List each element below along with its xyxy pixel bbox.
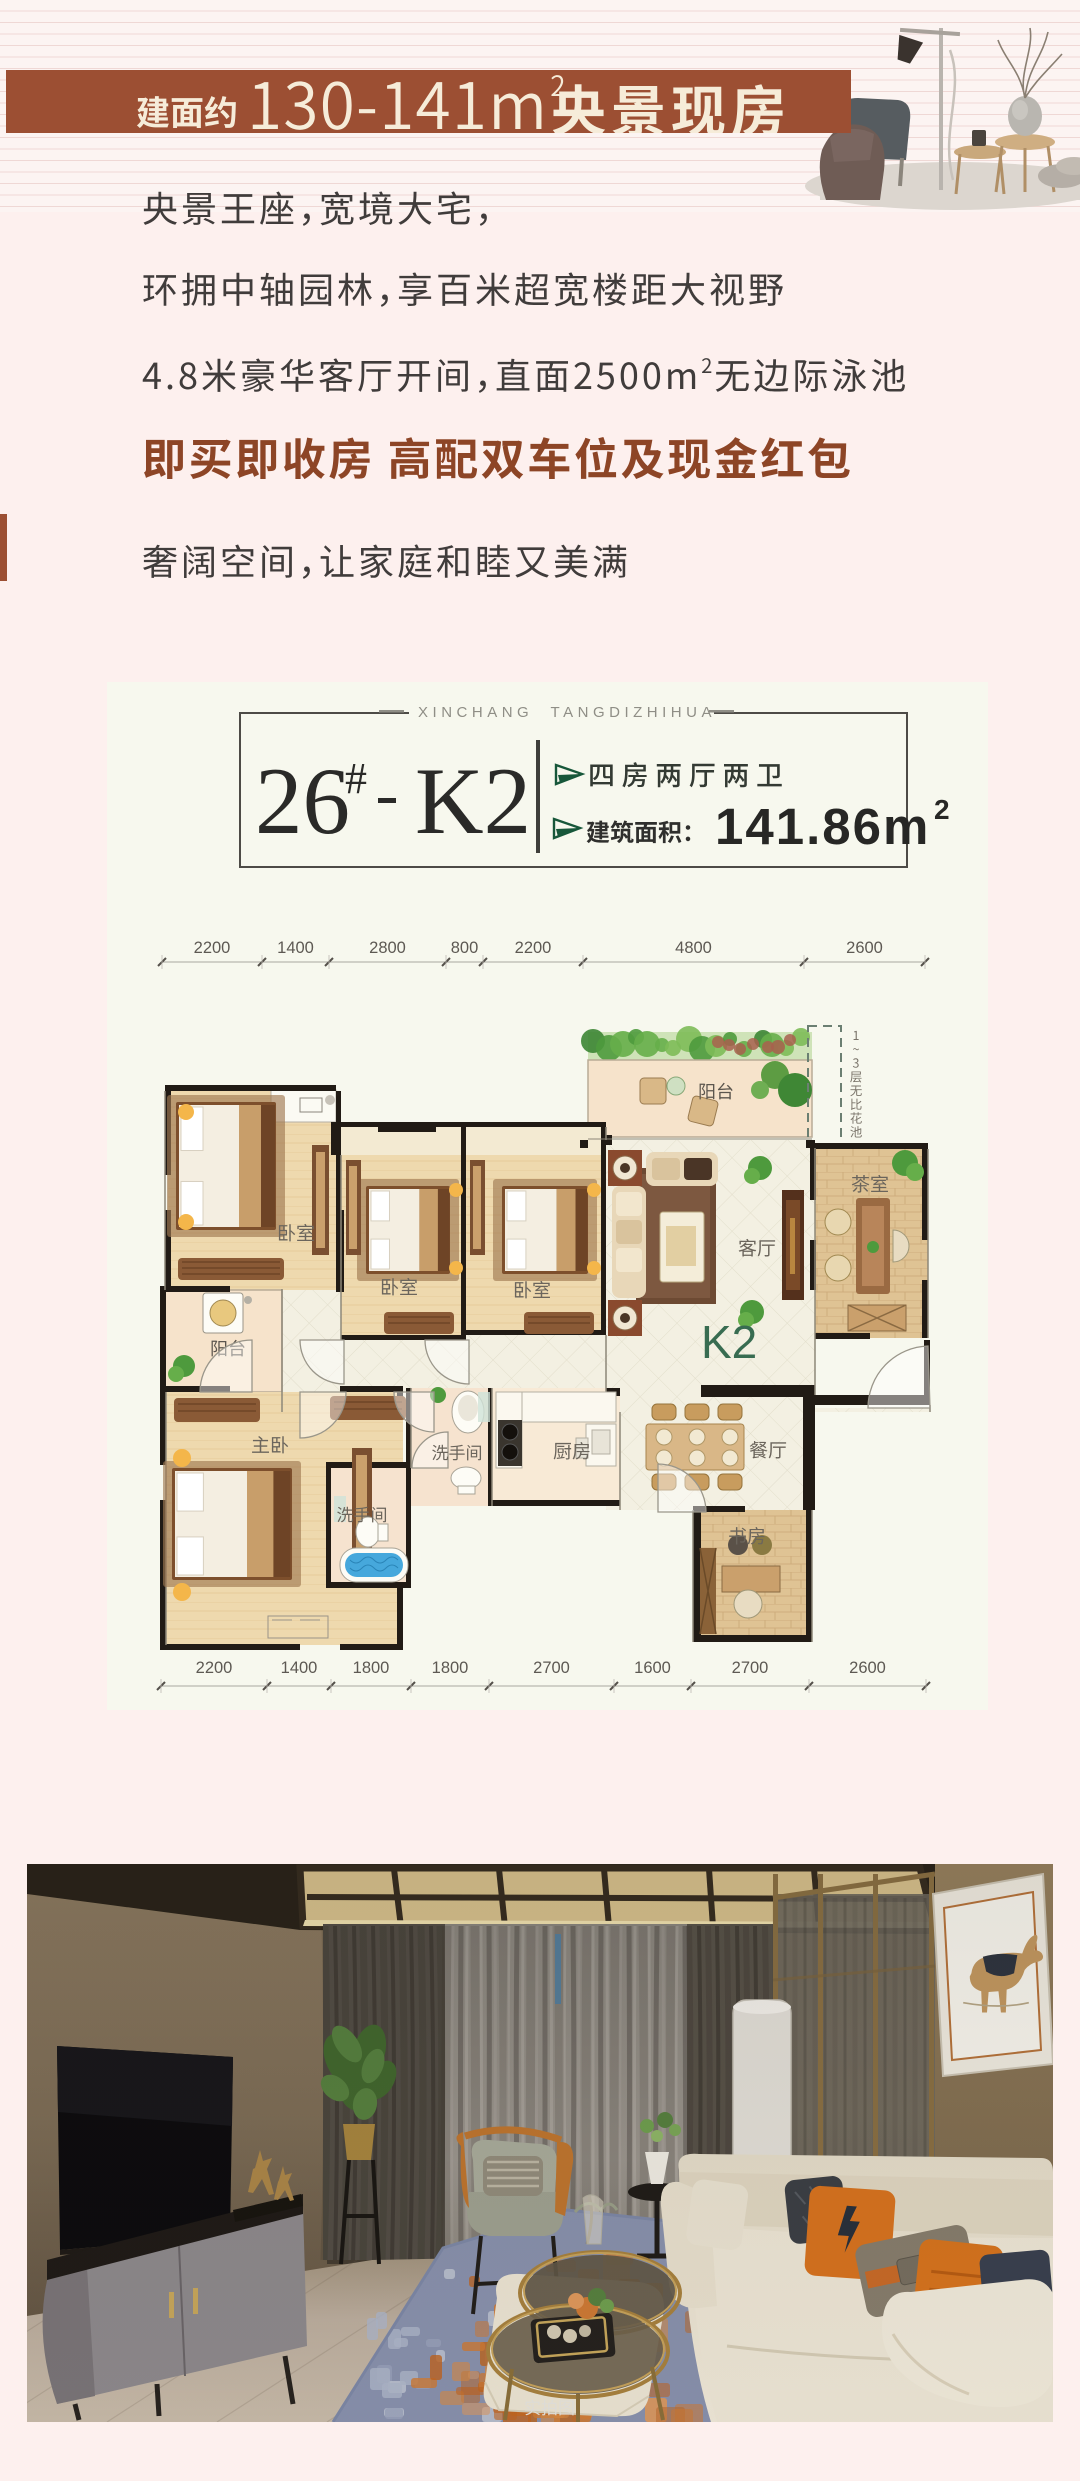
svg-text:K2: K2 bbox=[701, 1316, 757, 1368]
svg-text:1400: 1400 bbox=[281, 1659, 318, 1677]
svg-text:800: 800 bbox=[451, 939, 479, 957]
svg-text:1800: 1800 bbox=[432, 1659, 469, 1677]
svg-text:2200: 2200 bbox=[194, 939, 231, 957]
svg-text:2200: 2200 bbox=[515, 939, 552, 957]
svg-text:1400: 1400 bbox=[277, 939, 314, 957]
svg-text:2700: 2700 bbox=[732, 1659, 769, 1677]
svg-text:#: # bbox=[345, 754, 367, 803]
svg-text:26: 26 bbox=[255, 748, 350, 854]
svg-text:2600: 2600 bbox=[846, 939, 883, 957]
svg-text:2700: 2700 bbox=[533, 1659, 570, 1677]
svg-text:2200: 2200 bbox=[196, 1659, 233, 1677]
svg-text:141.86m: 141.86m bbox=[715, 798, 930, 855]
svg-text:4800: 4800 bbox=[675, 939, 712, 957]
svg-text:2600: 2600 bbox=[849, 1659, 886, 1677]
svg-text:1600: 1600 bbox=[634, 1659, 671, 1677]
svg-text:2800: 2800 bbox=[369, 939, 406, 957]
svg-text:2: 2 bbox=[934, 794, 950, 825]
svg-text:1800: 1800 bbox=[353, 1659, 390, 1677]
svg-text:K2: K2 bbox=[415, 748, 531, 854]
